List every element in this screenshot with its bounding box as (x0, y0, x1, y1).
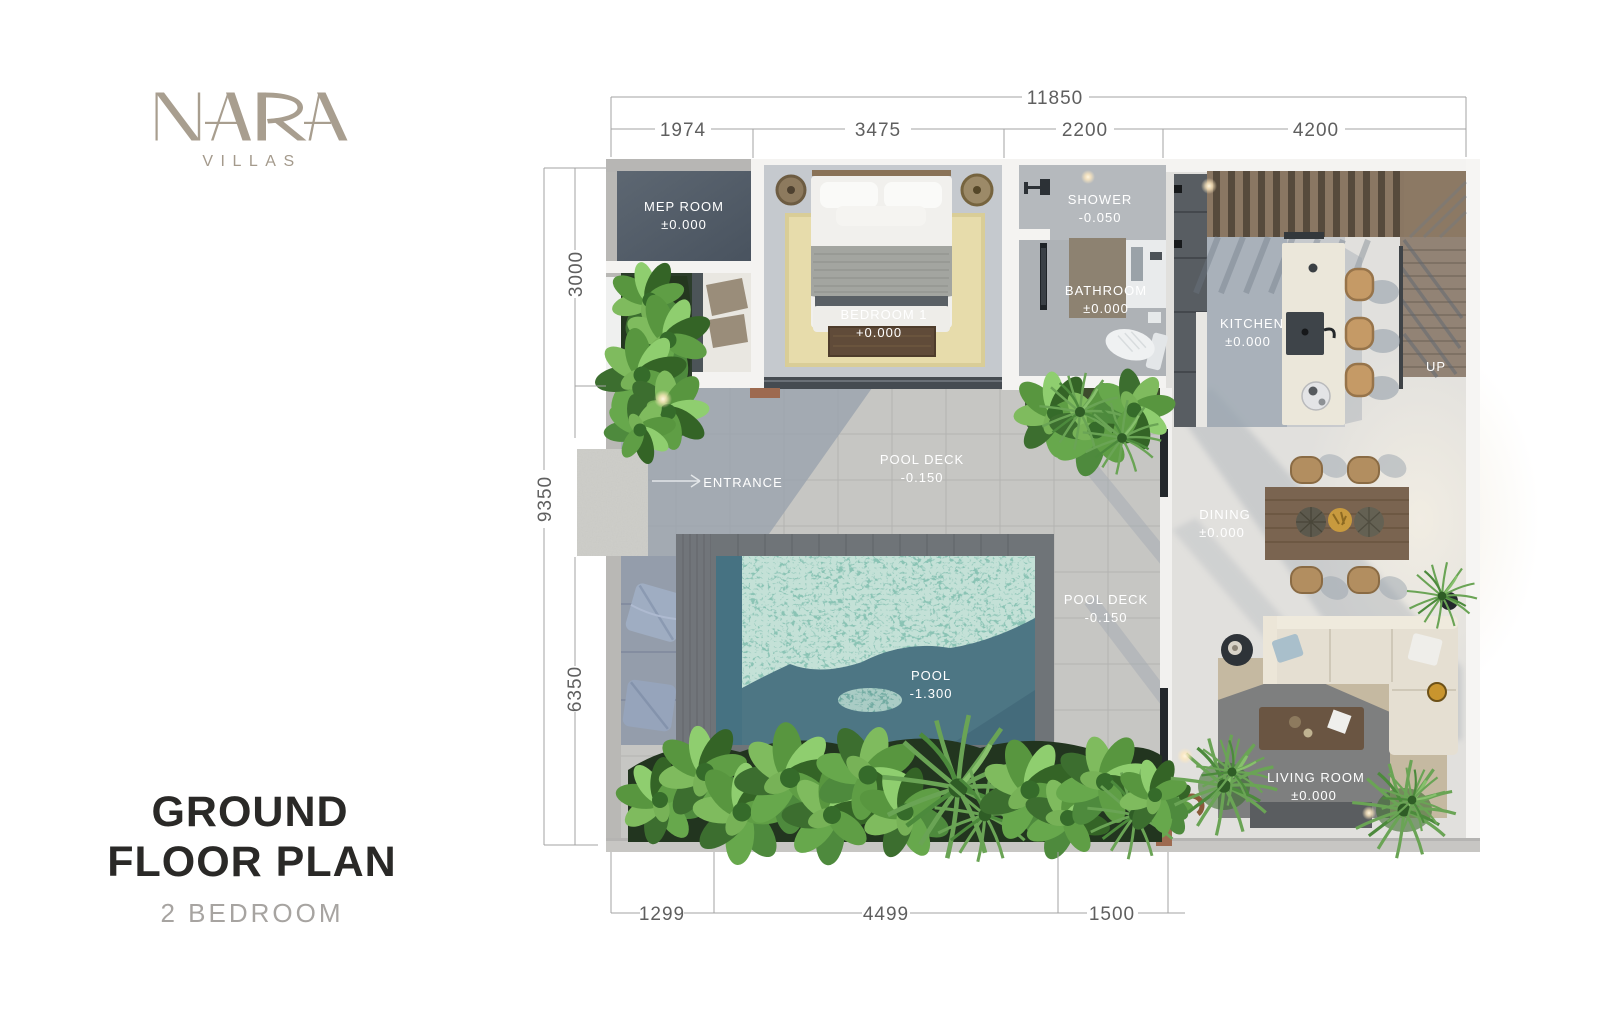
svg-text:-0.150: -0.150 (901, 470, 944, 485)
svg-text:±0.000: ±0.000 (661, 217, 707, 232)
svg-text:-1.300: -1.300 (910, 686, 953, 701)
svg-text:6350: 6350 (565, 666, 586, 712)
svg-text:2200: 2200 (1062, 120, 1108, 141)
svg-text:FLOOR PLAN: FLOOR PLAN (107, 838, 396, 886)
svg-text:1299: 1299 (639, 904, 685, 925)
svg-text:ENTRANCE: ENTRANCE (703, 475, 783, 490)
svg-text:±0.000: ±0.000 (1225, 334, 1271, 349)
svg-text:POOL DECK: POOL DECK (880, 452, 964, 467)
svg-text:3475: 3475 (855, 120, 901, 141)
svg-text:3000: 3000 (566, 251, 587, 297)
svg-text:-0.150: -0.150 (1085, 610, 1128, 625)
svg-text:±0.000: ±0.000 (1083, 301, 1129, 316)
svg-text:KITCHEN: KITCHEN (1220, 316, 1284, 331)
svg-text:2 BEDROOM: 2 BEDROOM (160, 898, 343, 928)
svg-text:BATHROOM: BATHROOM (1065, 283, 1147, 298)
svg-text:±0.000: ±0.000 (1291, 788, 1337, 803)
svg-text:POOL: POOL (911, 668, 951, 683)
svg-text:1500: 1500 (1089, 904, 1135, 925)
svg-text:+0.000: +0.000 (856, 325, 902, 340)
svg-text:4200: 4200 (1293, 120, 1339, 141)
svg-text:GROUND: GROUND (151, 788, 348, 836)
svg-text:BEDROOM 1: BEDROOM 1 (840, 307, 927, 322)
svg-text:VILLAS: VILLAS (202, 153, 301, 170)
svg-text:MEP ROOM: MEP ROOM (644, 199, 724, 214)
svg-text:-0.050: -0.050 (1079, 210, 1122, 225)
svg-text:±0.000: ±0.000 (1199, 525, 1245, 540)
svg-text:4499: 4499 (863, 904, 909, 925)
svg-text:POOL DECK: POOL DECK (1064, 592, 1148, 607)
svg-text:11850: 11850 (1027, 88, 1083, 109)
svg-text:LIVING ROOM: LIVING ROOM (1267, 770, 1365, 785)
svg-text:UP: UP (1426, 359, 1446, 374)
svg-text:1974: 1974 (660, 120, 706, 141)
svg-text:9350: 9350 (535, 476, 556, 522)
svg-text:SHOWER: SHOWER (1068, 192, 1133, 207)
svg-text:DINING: DINING (1199, 507, 1251, 522)
